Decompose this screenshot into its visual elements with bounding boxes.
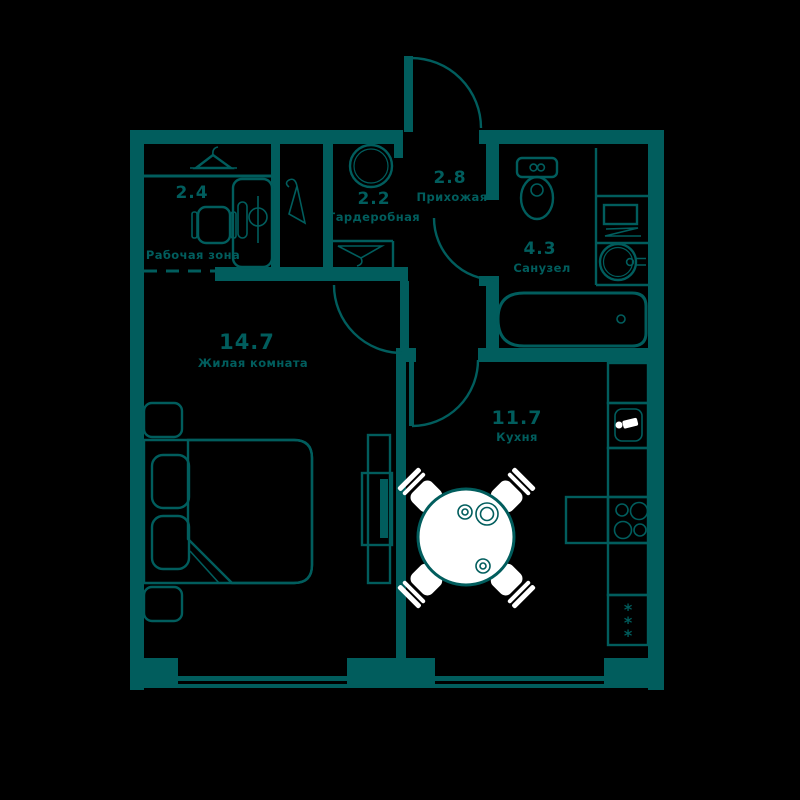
living-kitchen-wall <box>396 356 406 658</box>
bathroom-door-arc <box>434 218 496 280</box>
entrance-door-arc <box>411 58 481 128</box>
room-area-bathroom: 4.3 <box>523 239 556 259</box>
bed <box>144 440 312 583</box>
washing-machine-icon <box>604 205 641 236</box>
floor-plan: * * * 2.4 Рабочая зона 2.2 Гардеробная 2… <box>0 0 800 800</box>
nightstand <box>144 587 182 621</box>
entrance-door-leaf <box>404 56 413 132</box>
bathroom-sink-icon <box>600 244 646 280</box>
bathroom-wall-upper <box>486 144 499 200</box>
window-glass-line <box>178 684 347 688</box>
fridge-icon: * * * <box>624 600 633 645</box>
room-name-bathroom: Санузел <box>513 261 570 275</box>
living-door-arc <box>334 285 402 353</box>
living-door-leaf <box>400 281 409 353</box>
hall-living-wall <box>215 267 408 281</box>
kitchen-top-wall <box>478 348 664 362</box>
bathtub-icon <box>498 293 646 346</box>
blanket <box>188 440 312 583</box>
pillow <box>152 455 189 508</box>
room-area-workzone: 2.4 <box>175 183 208 203</box>
room-area-living: 14.7 <box>219 330 275 354</box>
kitchen-door-arc <box>412 360 478 426</box>
floor-plan-canvas: * * * 2.4 Рабочая зона 2.2 Гардеробная 2… <box>0 0 800 800</box>
room-area-hallway: 2.8 <box>433 168 466 188</box>
tv-icon <box>380 479 388 538</box>
closet-wall-right <box>323 144 333 269</box>
kitchen-door-leaf <box>409 360 414 426</box>
bathroom-door <box>434 218 496 280</box>
room-name-kitchen: Кухня <box>496 430 538 444</box>
wardrobe-basket-icon <box>350 145 392 187</box>
room-area-wardrobe: 2.2 <box>357 189 390 209</box>
toilet-icon <box>517 158 557 219</box>
entrance-door <box>404 56 481 132</box>
dining-table <box>418 489 514 585</box>
wall-top-right <box>479 130 664 144</box>
office-chair-icon <box>192 207 236 243</box>
pillow <box>152 516 189 569</box>
wall-left <box>130 130 144 690</box>
window-glass-line <box>178 676 347 681</box>
wall-right <box>648 130 664 690</box>
fridge-mark: * <box>624 626 633 645</box>
tv-stand <box>362 435 392 583</box>
nightstand <box>144 403 182 437</box>
wall-hook-icon <box>338 246 382 266</box>
window-kitchen <box>435 658 604 690</box>
kitchen-door <box>409 360 478 426</box>
window-living-room <box>178 658 347 690</box>
window-glass-line <box>435 684 604 688</box>
room-labels: 2.4 Рабочая зона 2.2 Гардеробная 2.8 При… <box>146 168 571 444</box>
wardrobe-compartment <box>333 241 393 267</box>
window-glass-line <box>435 676 604 681</box>
living-room-door <box>334 281 409 353</box>
hanger-icon <box>190 147 237 168</box>
room-name-living: Жилая комната <box>198 356 308 370</box>
bed-frame <box>144 440 312 583</box>
room-name-workzone: Рабочая зона <box>146 248 240 262</box>
entrance-jamb <box>394 130 403 158</box>
room-area-kitchen: 11.7 <box>492 407 543 429</box>
stove-icon <box>615 503 648 539</box>
kitchen-sink-icon <box>615 409 642 441</box>
coat-hanger-side-icon <box>287 179 306 223</box>
wall-top-left <box>130 130 403 144</box>
room-name-wardrobe: Гардеробная <box>328 210 420 224</box>
room-name-hallway: Прихожая <box>416 190 487 204</box>
